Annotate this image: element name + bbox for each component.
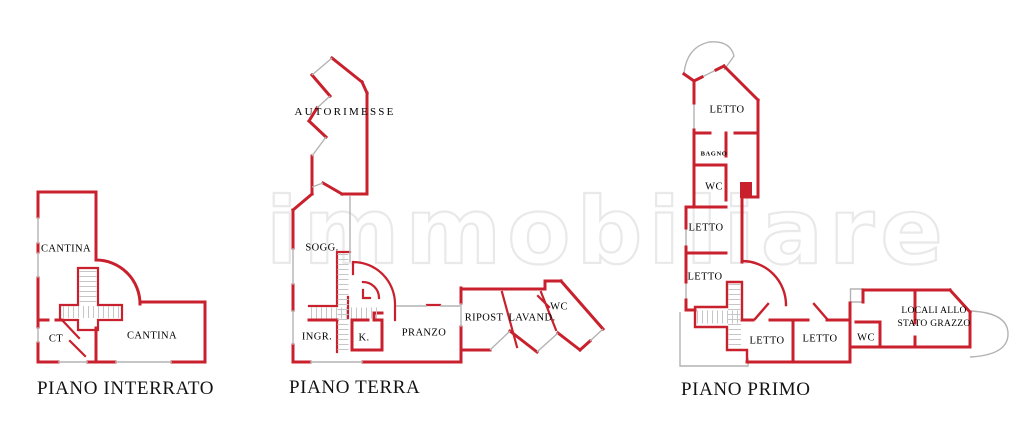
room-label-letto-centro-2: LETTO: [687, 272, 722, 283]
room-label-locali-riga2: STATO GRAZZO: [897, 319, 970, 329]
room-label-letto-sud-2: LETTO: [802, 334, 837, 345]
room-label-ripostiglio: RIPOST: [465, 313, 504, 324]
room-label-soggiorno: SOGG.: [305, 243, 338, 254]
floor-title-primo: PIANO PRIMO: [681, 379, 811, 401]
terra-garage-walls: [293, 58, 367, 210]
room-label-wc-nord: WC: [705, 182, 723, 193]
primo-chimney-block: [740, 182, 752, 198]
primo-door-arcs: [742, 261, 827, 319]
room-label-letto-nord: LETTO: [709, 105, 744, 116]
room-label-lavanderia: LAVAND.: [508, 313, 555, 324]
room-label-autorimesse: AUTORIMESSE: [294, 106, 395, 118]
room-label-cantina-nord: CANTINA: [41, 244, 91, 255]
room-label-letto-centro-1: LETTO: [688, 223, 723, 234]
room-label-letto-sud-1: LETTO: [749, 336, 784, 347]
room-label-ct: CT: [49, 334, 63, 345]
room-label-ingresso: INGR.: [302, 332, 332, 343]
room-label-cantina-sud: CANTINA: [127, 331, 177, 342]
room-label-wc-sud: WC: [857, 333, 875, 344]
room-label-locali-riga1: LOCALI ALLO: [901, 306, 966, 316]
room-label-pranzo: PRANZO: [402, 328, 446, 339]
floor-title-interrato: PIANO INTERRATO: [37, 378, 214, 400]
room-label-cucina: K.: [358, 333, 369, 344]
primo-balcony-est: [970, 311, 1008, 357]
floorplan-terra-walls: [293, 58, 603, 362]
primo-window-box: [851, 289, 864, 302]
room-label-wc-terra: WC: [550, 302, 568, 313]
terra-windows-and-lines: [293, 58, 603, 362]
room-label-bagno: BAGNO: [701, 151, 728, 158]
floor-title-terra: PIANO TERRA: [289, 377, 420, 399]
floorplan-primo-gray: [680, 42, 1008, 366]
floorplan-terra-gray: [293, 58, 603, 362]
floorplan-sheet: immobiliare: [0, 0, 1024, 447]
